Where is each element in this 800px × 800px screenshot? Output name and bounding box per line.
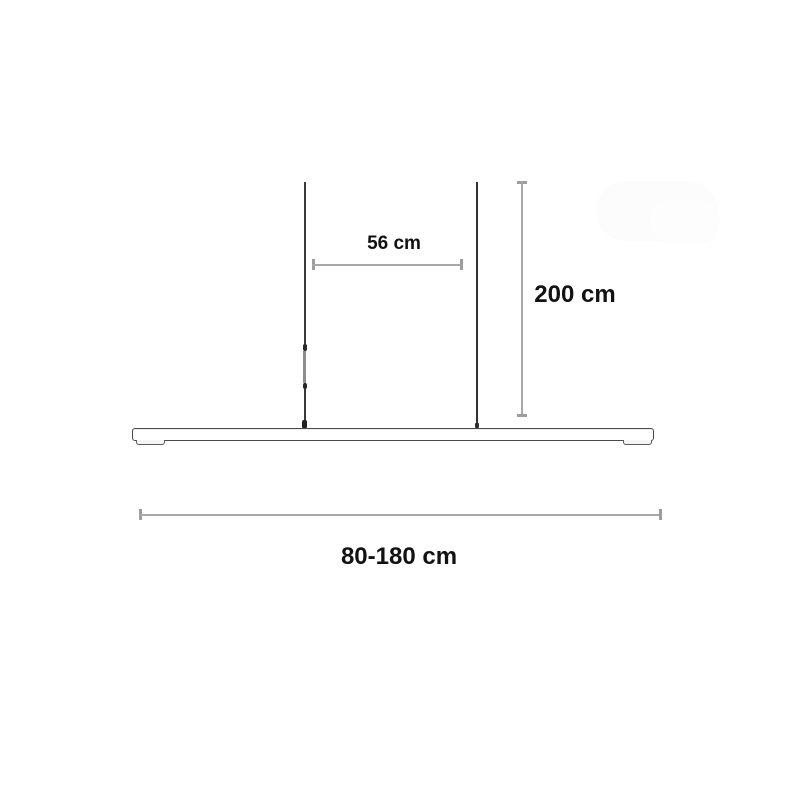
pendant-lamp-dimension-diagram: 56 cm 200 cm 80-180 cm bbox=[0, 0, 800, 800]
dimension-endcap-right bbox=[659, 509, 662, 520]
cable-spacing-label: 56 cm bbox=[344, 231, 444, 257]
left-suspension-cable bbox=[304, 182, 306, 428]
right-suspension-cable bbox=[476, 182, 478, 428]
left-cable-adjuster-node-top bbox=[303, 344, 307, 351]
width-range-label: 80-180 cm bbox=[299, 543, 499, 570]
lamp-bar-right-endcap bbox=[623, 440, 652, 445]
dimension-line bbox=[139, 514, 662, 516]
dimension-endcap-right bbox=[460, 259, 463, 270]
lamp-bar-left-endcap bbox=[136, 440, 165, 445]
cable-spacing-dimension-line bbox=[312, 259, 463, 270]
drop-height-label: 200 cm bbox=[514, 281, 636, 308]
left-cable-bar-joint bbox=[302, 420, 307, 428]
width-range-dimension-line bbox=[139, 509, 662, 520]
dimension-endcap-bottom bbox=[517, 414, 527, 417]
left-cable-adjuster-node-bottom bbox=[303, 383, 307, 389]
background-smudge-small bbox=[650, 200, 720, 245]
dimension-line bbox=[312, 264, 463, 266]
left-cable-adjuster-sleeve bbox=[303, 351, 306, 383]
lamp-bar bbox=[132, 428, 654, 441]
